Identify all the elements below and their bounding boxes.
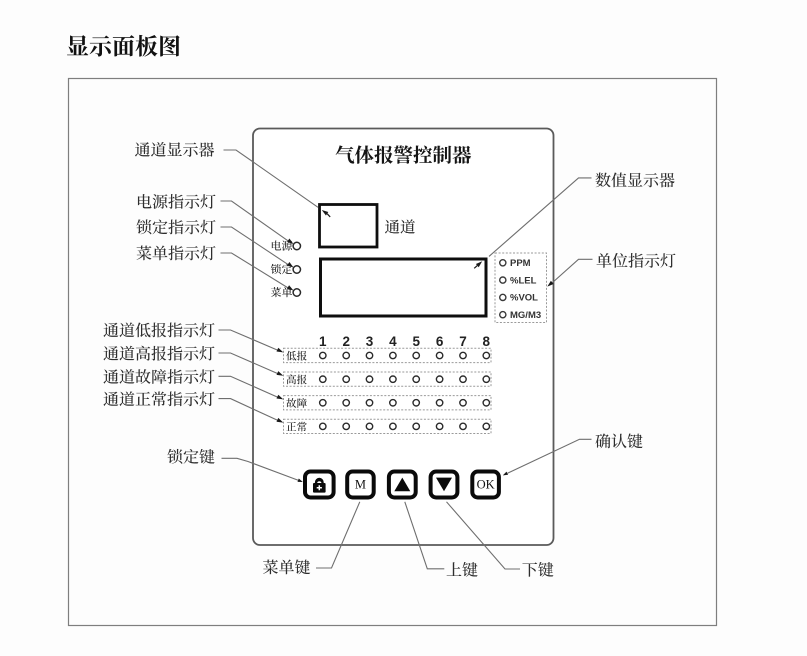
svg-text:3: 3 bbox=[366, 334, 374, 349]
svg-text:MG/M3: MG/M3 bbox=[510, 310, 541, 321]
svg-text:%VOL: %VOL bbox=[510, 293, 538, 304]
svg-text:OK: OK bbox=[477, 478, 495, 492]
svg-text:8: 8 bbox=[483, 334, 491, 349]
svg-text:%LEL: %LEL bbox=[510, 275, 537, 286]
svg-text:M: M bbox=[355, 478, 366, 492]
svg-text:4: 4 bbox=[389, 334, 397, 349]
svg-text:2: 2 bbox=[342, 334, 350, 349]
svg-text:7: 7 bbox=[459, 334, 467, 349]
svg-text:6: 6 bbox=[436, 334, 444, 349]
svg-text:1: 1 bbox=[319, 334, 327, 349]
svg-text:PPM: PPM bbox=[510, 258, 531, 269]
svg-text:5: 5 bbox=[412, 334, 420, 349]
